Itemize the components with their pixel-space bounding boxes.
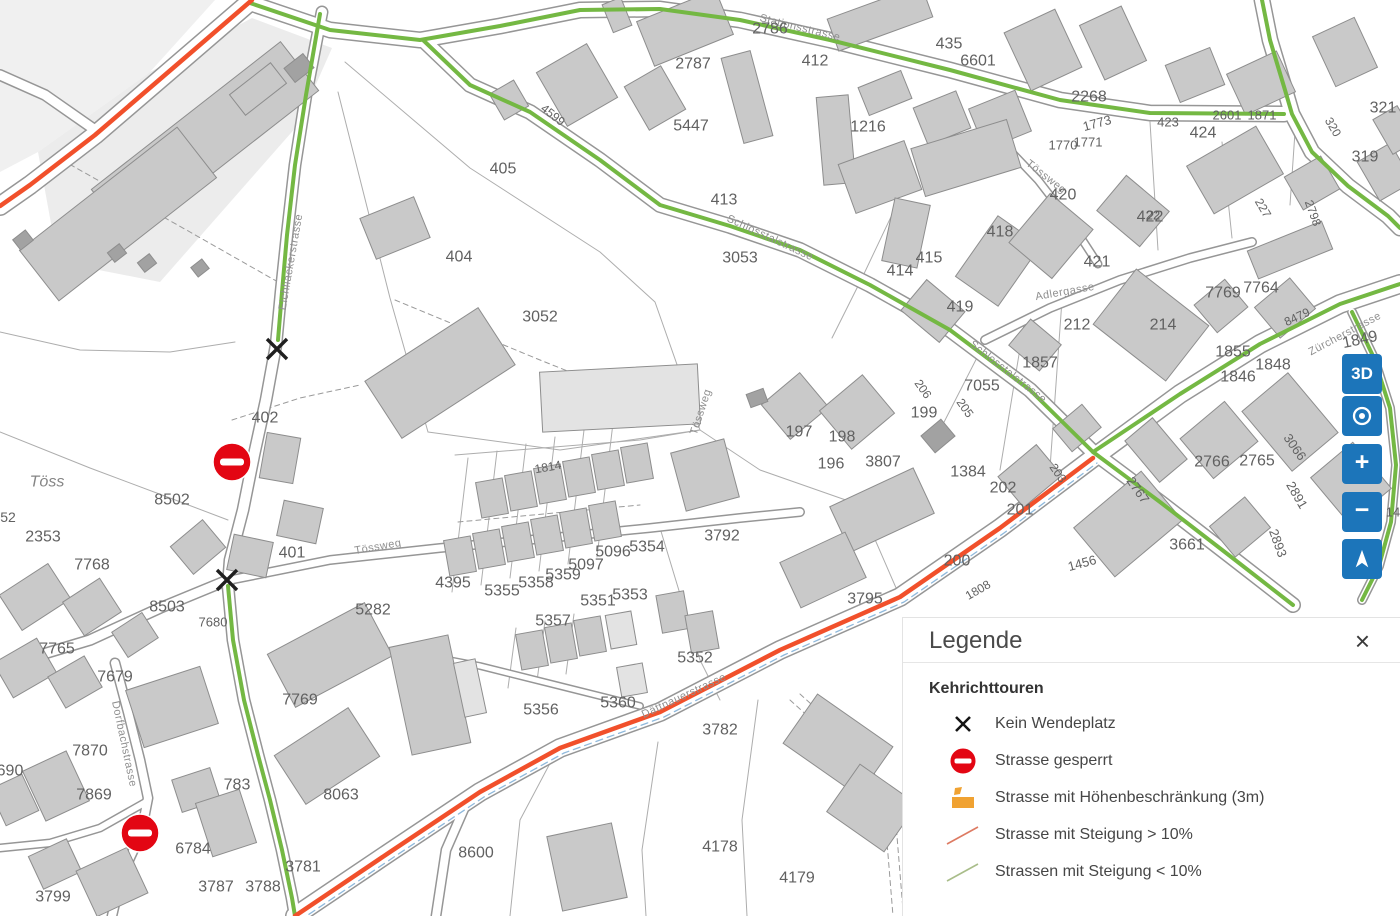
parcel-number-label: 5447 bbox=[673, 118, 709, 135]
no-turning-x-icon bbox=[943, 711, 983, 737]
building bbox=[444, 536, 477, 576]
parcel-number-label: 320 bbox=[1322, 115, 1344, 140]
parcel-number-label: 52 bbox=[0, 509, 16, 525]
parcel-number-label: 1771 bbox=[1074, 135, 1103, 150]
parcel-number-label: 4178 bbox=[702, 839, 738, 856]
north-arrow-icon bbox=[1348, 545, 1376, 573]
building bbox=[574, 616, 607, 656]
building bbox=[170, 520, 225, 575]
parcel-number-label: 7765 bbox=[39, 641, 75, 658]
parcel-number-label: 3807 bbox=[865, 454, 901, 471]
3d-view-button[interactable]: 3D bbox=[1342, 354, 1382, 394]
building bbox=[531, 515, 564, 555]
building bbox=[360, 197, 430, 260]
building bbox=[502, 522, 535, 562]
parcel-number-label: 2765 bbox=[1239, 453, 1275, 470]
parcel-number-label: 424 bbox=[1190, 125, 1217, 142]
building bbox=[277, 500, 324, 544]
parcel-number-label: 7769 bbox=[1205, 285, 1241, 302]
parcel-number-label: 7769 bbox=[282, 692, 318, 709]
building bbox=[0, 564, 71, 631]
parcel-number-label: 2786 bbox=[752, 21, 788, 38]
legend-item-label: Strasse mit Steigung > 10% bbox=[995, 826, 1193, 844]
parcel-number-label: 1857 bbox=[1022, 355, 1058, 372]
building bbox=[540, 364, 701, 432]
parcel-number-label: 5354 bbox=[629, 539, 665, 556]
place-name-label: Töss bbox=[30, 474, 65, 491]
parcel-number-label: 1871 bbox=[1248, 108, 1277, 123]
building bbox=[76, 848, 148, 916]
building bbox=[560, 508, 593, 548]
parcel-number-label: 7679 bbox=[97, 669, 133, 686]
parcel-number-label: 421 bbox=[1084, 254, 1111, 271]
legend-item-label: Strasse mit Höhenbeschränkung (3m) bbox=[995, 789, 1264, 807]
parcel-number-label: 401 bbox=[279, 545, 306, 562]
parcel-number-label: 2787 bbox=[675, 56, 711, 73]
building bbox=[1247, 221, 1332, 279]
compass-button[interactable] bbox=[1342, 539, 1382, 579]
parcel-number-label: 1846 bbox=[1220, 369, 1256, 386]
building bbox=[592, 450, 625, 490]
building bbox=[1004, 9, 1082, 91]
parcel-number-label: 196 bbox=[818, 456, 845, 473]
parcel-number-label: 201 bbox=[1007, 502, 1034, 519]
legend-title: Legende bbox=[929, 627, 1022, 655]
parcel-number-label: 7680 bbox=[199, 615, 228, 630]
parcel-number-label: 415 bbox=[916, 250, 943, 267]
parcel-number-label: 22 bbox=[1146, 208, 1160, 223]
building bbox=[685, 611, 719, 653]
legend-panel: Legende × Kehrichttouren Kein Wendeplatz bbox=[902, 617, 1400, 916]
parcel-number-label: 5356 bbox=[523, 702, 559, 719]
building bbox=[365, 308, 515, 439]
parcel-boundary bbox=[455, 430, 700, 455]
parcel-number-label: 5351 bbox=[580, 593, 616, 610]
parcel-number-label: 2893 bbox=[1266, 527, 1290, 559]
road-closed-icon bbox=[943, 748, 983, 774]
legend-item-steep-road: Strasse mit Steigung > 10% bbox=[929, 822, 1374, 848]
parcel-number-label: 8600 bbox=[458, 845, 494, 862]
map-controls: 3D + − bbox=[1342, 354, 1382, 579]
geolocate-button[interactable] bbox=[1342, 396, 1382, 436]
building bbox=[547, 823, 627, 911]
building bbox=[921, 419, 955, 453]
parcel-number-label: 783 bbox=[224, 777, 251, 794]
height-restriction-icon bbox=[943, 785, 983, 811]
parcel-number-label: 6784 bbox=[175, 841, 211, 858]
building bbox=[605, 611, 637, 649]
parcel-number-label: 3782 bbox=[702, 722, 738, 739]
legend-body: Kehrichttouren Kein Wendeplatz bbox=[903, 663, 1400, 885]
parcel-number-label: 202 bbox=[990, 480, 1017, 497]
flat-road-line-icon bbox=[943, 859, 983, 885]
building bbox=[112, 613, 159, 658]
building bbox=[656, 591, 690, 633]
legend-item-label: Strassen mit Steigung < 10% bbox=[995, 863, 1202, 881]
parcel-number-label: 205 bbox=[954, 396, 977, 421]
parcel-number-label: 414 bbox=[887, 263, 914, 280]
parcel-number-label: 2798 bbox=[1302, 198, 1324, 228]
building bbox=[721, 51, 773, 144]
legend-close-icon[interactable]: × bbox=[1355, 628, 1370, 654]
building bbox=[473, 529, 506, 569]
building bbox=[126, 666, 219, 747]
parcel-number-label: 7055 bbox=[964, 378, 1000, 395]
building bbox=[858, 70, 912, 115]
parcel-number-label: 3788 bbox=[245, 879, 281, 896]
parcel-number-label: 200 bbox=[944, 553, 971, 570]
building bbox=[259, 432, 300, 483]
building bbox=[621, 443, 654, 483]
parcel-number-label: 2766 bbox=[1194, 454, 1230, 471]
parcel-number-label: 404 bbox=[446, 249, 473, 266]
parcel-boundary bbox=[1050, 300, 1062, 468]
parcel-number-label: 1384 bbox=[950, 464, 986, 481]
building bbox=[1313, 17, 1378, 86]
parcel-number-label: 3661 bbox=[1169, 537, 1205, 554]
parcel-number-label: 6601 bbox=[960, 53, 996, 70]
legend-item-label: Kein Wendeplatz bbox=[995, 715, 1116, 733]
building bbox=[1079, 6, 1146, 80]
parcel-boundary bbox=[742, 700, 758, 916]
parcel-number-label: 212 bbox=[1064, 317, 1091, 334]
parcel-number-label: 2353 bbox=[25, 529, 61, 546]
parcel-number-label: 5282 bbox=[355, 602, 391, 619]
road-closed-marker bbox=[213, 443, 251, 481]
zoom-out-button[interactable]: − bbox=[1342, 492, 1382, 532]
parcel-number-label: 423 bbox=[1157, 115, 1179, 130]
parcel-number-label: 419 bbox=[947, 299, 974, 316]
parcel-number-label: 4179 bbox=[779, 870, 815, 887]
parcel-number-label: 319 bbox=[1352, 149, 1379, 166]
parcel-boundary bbox=[428, 430, 700, 450]
parcel-number-label: 206 bbox=[912, 377, 935, 402]
parcel-number-label: 405 bbox=[490, 161, 517, 178]
parcel-number-label: 1216 bbox=[850, 119, 886, 136]
parcel-number-label: 412 bbox=[802, 53, 829, 70]
parcel-number-label: 8502 bbox=[154, 492, 190, 509]
parcel-number-label: 690 bbox=[0, 763, 23, 780]
parcel-boundary bbox=[642, 742, 658, 916]
parcel-number-label: 3787 bbox=[198, 879, 234, 896]
building bbox=[589, 501, 622, 541]
parcel-number-label: 3792 bbox=[704, 528, 740, 545]
parcel-number-label: 1848 bbox=[1255, 357, 1291, 374]
steep-road-line-icon bbox=[943, 822, 983, 848]
parcel-number-label: 198 bbox=[829, 429, 856, 446]
building bbox=[563, 457, 596, 497]
parcel-number-label: 227 bbox=[1252, 196, 1274, 221]
building bbox=[617, 663, 648, 697]
building bbox=[476, 478, 509, 518]
parcel-number-label: 5355 bbox=[484, 583, 520, 600]
parcel-number-label: 5357 bbox=[535, 613, 571, 630]
legend-item-no-turning: Kein Wendeplatz bbox=[929, 711, 1374, 737]
parcel-number-label: 3795 bbox=[847, 591, 883, 608]
building bbox=[389, 635, 471, 755]
legend-item-height-restriction: Strasse mit Höhenbeschränkung (3m) bbox=[929, 785, 1374, 811]
building bbox=[1165, 47, 1224, 102]
parcel-number-label: 5353 bbox=[612, 587, 648, 604]
parcel-number-label: 420 bbox=[1050, 187, 1077, 204]
parcel-number-label: 3781 bbox=[285, 859, 321, 876]
parcel-number-label: 7768 bbox=[74, 557, 110, 574]
parcel-number-label: 7870 bbox=[72, 743, 108, 760]
target-icon bbox=[1348, 402, 1376, 430]
parcel-number-label: 7764 bbox=[1243, 280, 1279, 297]
parcel-number-label: 435 bbox=[936, 36, 963, 53]
parcel-number-label: 5358 bbox=[518, 575, 554, 592]
legend-item-label: Strasse gesperrt bbox=[995, 752, 1112, 770]
parcel-number-label: 413 bbox=[711, 192, 738, 209]
legend-header: Legende × bbox=[903, 618, 1400, 662]
parcel-number-label: 418 bbox=[987, 224, 1014, 241]
legend-section-title: Kehrichttouren bbox=[929, 680, 1374, 698]
parcel-number-label: 5352 bbox=[677, 650, 713, 667]
parcel-number-label: 14 bbox=[1386, 505, 1400, 520]
parcel-number-label: 402 bbox=[252, 410, 279, 427]
parcel-number-label: 1456 bbox=[1066, 552, 1098, 574]
parcel-number-label: 7869 bbox=[76, 787, 112, 804]
street-name-label: Dättnauerstrasse bbox=[640, 671, 728, 721]
parcel-number-label: 214 bbox=[1150, 317, 1177, 334]
parcel-number-label: 3052 bbox=[522, 309, 558, 326]
parcel-number-label: 3053 bbox=[722, 250, 758, 267]
parcel-number-label: 321 bbox=[1370, 100, 1397, 117]
parcel-boundary bbox=[0, 332, 235, 352]
parcel-number-label: 8063 bbox=[323, 787, 359, 804]
parcel-number-label: 3799 bbox=[35, 889, 71, 906]
parcel-number-label: 1808 bbox=[963, 577, 993, 603]
legend-item-road-closed: Strasse gesperrt bbox=[929, 748, 1374, 774]
parcel-number-label: 2268 bbox=[1071, 89, 1107, 106]
parcel-number-label: 2891 bbox=[1283, 479, 1310, 512]
parcel-number-label: 199 bbox=[911, 405, 938, 422]
building bbox=[48, 656, 102, 708]
legend-item-flat-road: Strassen mit Steigung < 10% bbox=[929, 859, 1374, 885]
parcel-number-label: 8503 bbox=[149, 599, 185, 616]
parcel-number-label: 4395 bbox=[435, 575, 471, 592]
road-closed-marker bbox=[121, 814, 159, 852]
parcel-number-label: 2601 bbox=[1213, 108, 1242, 123]
map-app: StationsstrasseSchlosstalstrasseSchlosst… bbox=[0, 0, 1400, 916]
parcel-number-label: 197 bbox=[786, 424, 813, 441]
parcel-number-label: 5360 bbox=[600, 695, 636, 712]
building bbox=[516, 630, 549, 670]
parcel-boundary bbox=[508, 628, 516, 688]
parcel-number-label: 1855 bbox=[1215, 344, 1251, 361]
zoom-in-button[interactable]: + bbox=[1342, 444, 1382, 484]
parcel-number-label: 1773 bbox=[1081, 112, 1113, 134]
building bbox=[191, 259, 209, 277]
building bbox=[505, 471, 538, 511]
